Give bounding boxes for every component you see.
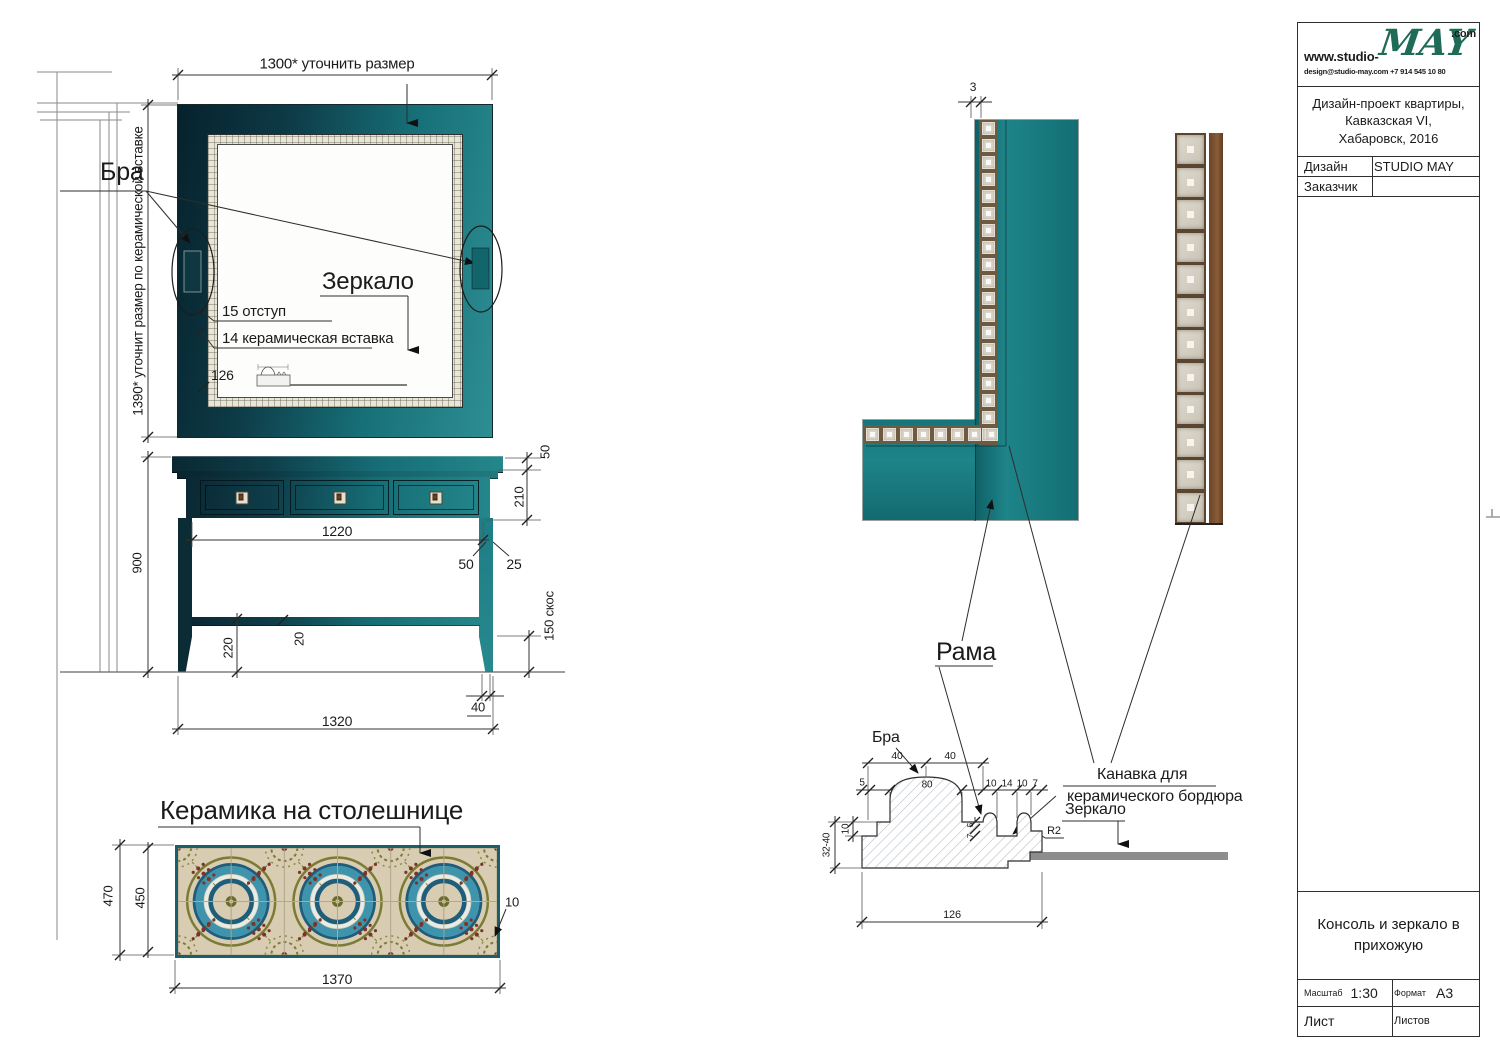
photo-border-tile: [1177, 135, 1204, 164]
ceramic-border-tile: [982, 207, 995, 220]
dim-tile-470: 470: [101, 885, 116, 906]
ceramic-border-tile: [982, 139, 995, 152]
ceramic-border-tile: [982, 394, 995, 407]
console-leg-left: [178, 518, 192, 672]
format-value: А3: [1436, 985, 1453, 1001]
client-row: Заказчик: [1298, 176, 1479, 197]
sheets-label: Листов: [1388, 1006, 1479, 1036]
label-frame: Рама: [936, 638, 996, 667]
ceramic-border-tile: [982, 360, 995, 373]
ceramic-border-tile: [982, 224, 995, 237]
console-stretcher: [192, 617, 480, 626]
ceramic-border-tile: [900, 428, 913, 441]
dim-n10: 10: [841, 824, 852, 835]
label-mirror: Зеркало: [322, 268, 414, 296]
dim-tile-10: 10: [505, 895, 519, 910]
ceramic-border-tile: [982, 122, 995, 135]
dim-v7: 7: [965, 834, 975, 839]
sheet-title-cell: Консоль и зеркало в прихожую: [1298, 891, 1479, 980]
client-label: Заказчик: [1298, 176, 1373, 196]
ceramic-border-tile: [866, 428, 879, 441]
drawer: [393, 480, 479, 515]
ceramic-border-tile: [985, 428, 998, 441]
photo-border-tile: [1177, 395, 1204, 424]
dim-p10a: 10: [986, 779, 997, 790]
ceramic-border-tile: [982, 309, 995, 322]
scale-row: Масштаб 1:30 Формат А3: [1298, 979, 1479, 1007]
logo-url-prefix: www.studio-: [1304, 49, 1379, 64]
ceramic-border-tile: [883, 428, 896, 441]
client-value: [1368, 176, 1479, 196]
ceramic-border-tile: [982, 241, 995, 254]
photo-border-tile: [1177, 460, 1204, 489]
ceramic-knob: [236, 491, 249, 504]
photo-border-tile: [1177, 265, 1204, 294]
dim-p14: 14: [1002, 779, 1013, 790]
wood-strip: [1209, 133, 1223, 523]
project-title: Дизайн-проект квартиры, Кавказская VI, Х…: [1312, 95, 1464, 148]
design-label: Дизайн: [1298, 156, 1373, 176]
dim-32-40: 32-40: [822, 833, 833, 858]
dim-mirror-width: 1300* уточнить размер: [259, 56, 414, 73]
design-row: Дизайн STUDIO MAY: [1298, 156, 1479, 177]
drawer: [200, 480, 284, 515]
photo-border-tile: [1177, 363, 1204, 392]
sheet-row: Лист Листов: [1298, 1006, 1479, 1036]
drawer: [290, 480, 389, 515]
ceramic-border-photo: [1175, 133, 1223, 525]
drawing-sheet: 1300* уточнить размер 1390* уточнит разм…: [0, 0, 1500, 1060]
dim-p7: 7: [1032, 779, 1037, 790]
sheet-title: Консоль и зеркало в прихожую: [1298, 914, 1479, 956]
ceramic-border-tile: [982, 275, 995, 288]
dim-drawer-210: 210: [512, 486, 527, 507]
mirror-glass-section: [1022, 852, 1228, 860]
photo-border-tile: [1177, 298, 1204, 327]
ceramic-border-tile: [917, 428, 930, 441]
dim-foot-40: 40: [471, 700, 485, 715]
label-ceramic-insert-14: 14 керамическая вставка: [222, 330, 393, 347]
ceramic-border-tile: [968, 428, 981, 441]
dim-p40a: 40: [891, 750, 902, 762]
ceramic-ornament-pattern: [178, 848, 497, 955]
dim-top-50: 50: [538, 445, 553, 459]
dim-height-900: 900: [130, 552, 145, 573]
dim-p10b: 10: [1017, 779, 1028, 790]
dim-v5: 5: [965, 823, 975, 828]
photo-border-tile: [1177, 168, 1204, 197]
format-label: Формат: [1394, 988, 1426, 998]
dim-bar-20: 20: [292, 632, 307, 646]
scale-value: 1:30: [1351, 985, 1378, 1001]
dim-offset-25: 25: [506, 556, 521, 572]
label-ceramic-top: Керамика на столешнице: [160, 795, 463, 826]
ceramic-border-tile: [934, 428, 947, 441]
ceramic-top-panel: [175, 845, 500, 958]
ceramic-border-tile: [982, 411, 995, 424]
photo-border-tile: [1177, 428, 1204, 457]
dim-tile-450: 450: [133, 887, 148, 908]
dim-p5: 5: [859, 778, 864, 789]
ceramic-border-tile: [982, 343, 995, 356]
dim-frame-126: 126: [211, 367, 234, 383]
scale-label: Масштаб: [1304, 988, 1343, 998]
ceramic-border-tile: [982, 190, 995, 203]
ceramic-border-tile: [982, 377, 995, 390]
ceramic-border-tile: [982, 258, 995, 271]
project-cell: Дизайн-проект квартиры, Кавказская VI, Х…: [1298, 86, 1479, 157]
dim-stretcher-220: 220: [221, 637, 236, 658]
photo-tile-column: [1175, 133, 1206, 523]
dim-inner-1220: 1220: [322, 523, 352, 539]
photo-border-tile: [1177, 233, 1204, 262]
title-block: www.studio- MAY .com design@studio-may.c…: [1297, 22, 1480, 1037]
ceramic-border-tile: [982, 292, 995, 305]
ceramic-knob: [333, 491, 346, 504]
dim-r2: R2: [1047, 825, 1061, 837]
label-groove-line1: Канавка для: [1097, 766, 1187, 784]
design-value: STUDIO MAY: [1368, 156, 1479, 176]
logo-cell: www.studio- MAY .com design@studio-may.c…: [1298, 23, 1479, 87]
dim-groove-3: 3: [970, 80, 976, 94]
ceramic-border-tile: [951, 428, 964, 441]
empty-cell: [1298, 196, 1479, 892]
ceramic-border-tile: [982, 156, 995, 169]
label-mirror-section: Зеркало: [1065, 801, 1126, 819]
ceramic-border-tile: [982, 173, 995, 186]
console-leg-right: [479, 518, 493, 672]
dim-width-1320: 1320: [322, 713, 352, 729]
dim-base-126: 126: [943, 909, 961, 921]
sheet-label: Лист: [1298, 1006, 1393, 1036]
ceramic-border-tile: [982, 326, 995, 339]
dim-p80: 80: [922, 780, 933, 791]
logo-tld: .com: [1451, 28, 1476, 40]
label-sconce-section: Бра: [872, 729, 900, 747]
dim-leg-50: 50: [458, 556, 473, 572]
dim-p40b: 40: [944, 750, 955, 762]
console-drawer-band: [186, 477, 490, 518]
logo-contact: design@studio-may.com +7 914 545 10 80: [1304, 67, 1446, 76]
photo-border-tile: [1177, 200, 1204, 229]
photo-border-tile: [1177, 330, 1204, 359]
dim-taper-150: 150 скос: [542, 591, 557, 641]
ceramic-knob: [430, 491, 443, 504]
photo-border-tile: [1177, 493, 1204, 522]
dim-tile-1370: 1370: [322, 971, 352, 987]
label-offset-15: 15 отступ: [222, 303, 286, 320]
label-sconce: Бра: [100, 158, 144, 187]
